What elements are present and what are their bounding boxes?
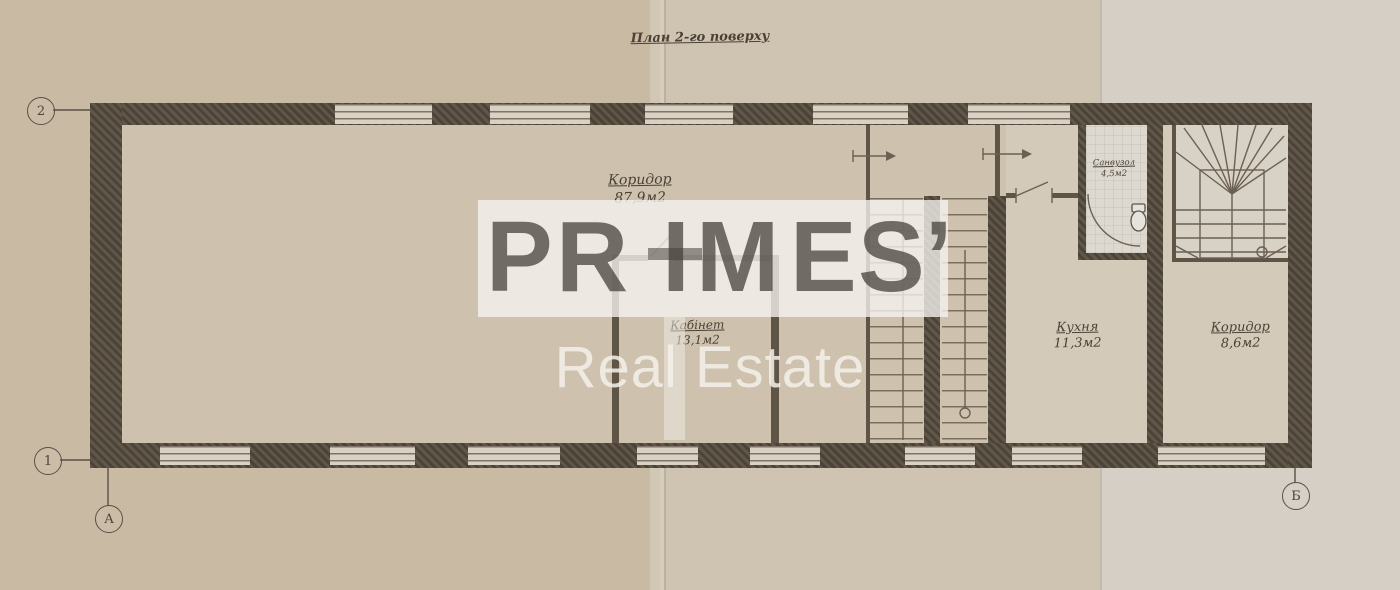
watermark-i-crossbar bbox=[648, 248, 702, 260]
axis-marker-b: Б bbox=[1282, 482, 1310, 510]
axis-marker-a: А bbox=[95, 505, 123, 533]
room-name: Коридор bbox=[1198, 319, 1283, 337]
kitchen-door-leaf bbox=[1016, 182, 1048, 196]
watermark-band: P R I M E S’ bbox=[478, 200, 948, 317]
room-name: Кухня bbox=[1040, 319, 1115, 337]
watermark-letter: M bbox=[696, 200, 779, 315]
room-label-corridor-right: Коридор 8,6м2 bbox=[1198, 319, 1284, 353]
arrowhead-icon bbox=[886, 151, 896, 161]
room-name: Санвузол bbox=[1084, 157, 1144, 169]
axis-marker-1: 1 bbox=[34, 447, 62, 475]
arrowhead-icon bbox=[1022, 149, 1032, 159]
watermark-letter: R bbox=[556, 200, 628, 315]
toilet-icon bbox=[1131, 204, 1146, 231]
axis-label: Б bbox=[1291, 489, 1301, 504]
axis-label: 2 bbox=[37, 104, 45, 119]
room-area: 8,6м2 bbox=[1198, 336, 1283, 354]
watermark-letter: S’ bbox=[858, 200, 952, 315]
room-label-kitchen: Кухня 11,3м2 bbox=[1040, 319, 1116, 353]
watermark-tagline: Real Estate bbox=[505, 334, 915, 401]
axis-marker-2: 2 bbox=[27, 97, 55, 125]
stair-start-marker bbox=[960, 408, 970, 418]
axis-label: А bbox=[104, 512, 114, 527]
axis-label: 1 bbox=[44, 454, 52, 469]
room-area: 4,5м2 bbox=[1084, 168, 1144, 180]
watermark-letter: E bbox=[790, 200, 857, 315]
winder-staircase bbox=[1176, 125, 1286, 258]
room-name: Коридор bbox=[595, 171, 685, 190]
floor-plan-sheet: План 2-го поверху bbox=[0, 0, 1400, 590]
room-area: 11,3м2 bbox=[1040, 336, 1115, 354]
watermark-letter: P bbox=[486, 200, 553, 315]
room-label-bathroom: Санвузол 4,5м2 bbox=[1084, 157, 1144, 179]
